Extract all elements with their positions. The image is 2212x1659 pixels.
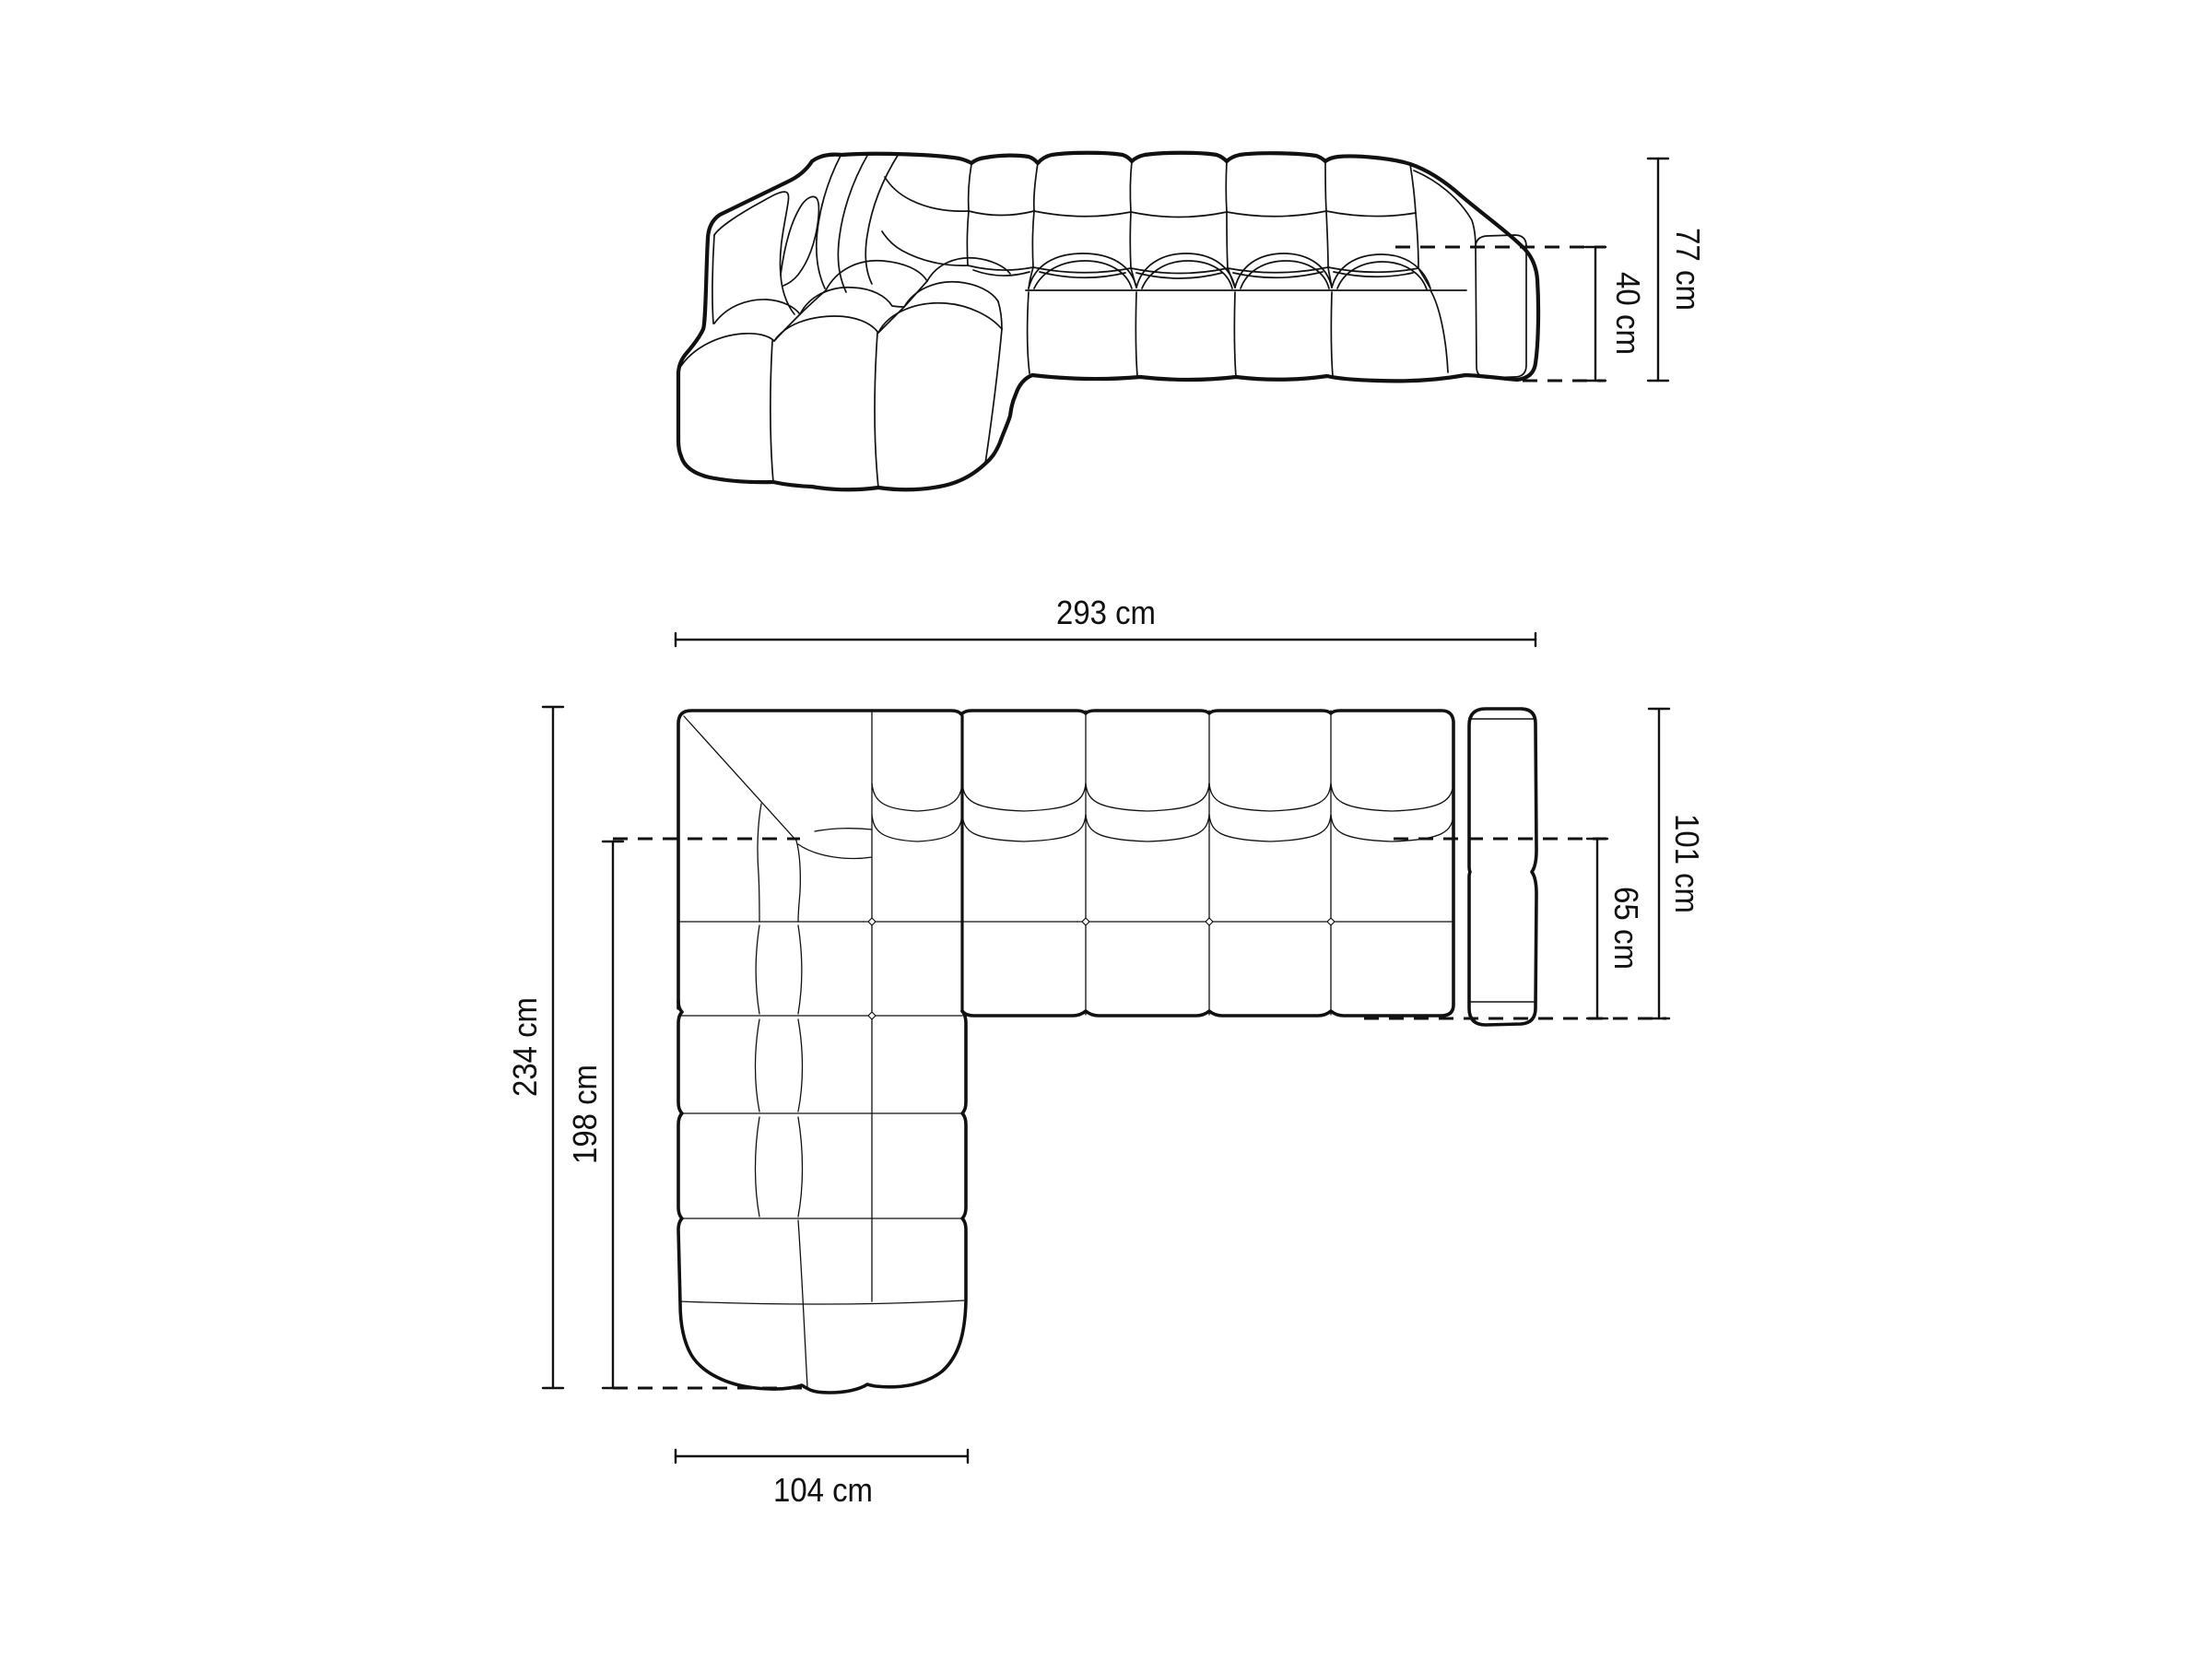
- svg-text:234 cm: 234 cm: [506, 997, 544, 1097]
- svg-text:101 cm: 101 cm: [1668, 814, 1706, 913]
- svg-text:293 cm: 293 cm: [1056, 594, 1156, 631]
- svg-text:104 cm: 104 cm: [773, 1471, 873, 1509]
- svg-text:77 cm: 77 cm: [1669, 228, 1707, 311]
- svg-text:40 cm: 40 cm: [1609, 272, 1647, 355]
- svg-text:198 cm: 198 cm: [566, 1065, 604, 1164]
- svg-text:65 cm: 65 cm: [1607, 887, 1645, 970]
